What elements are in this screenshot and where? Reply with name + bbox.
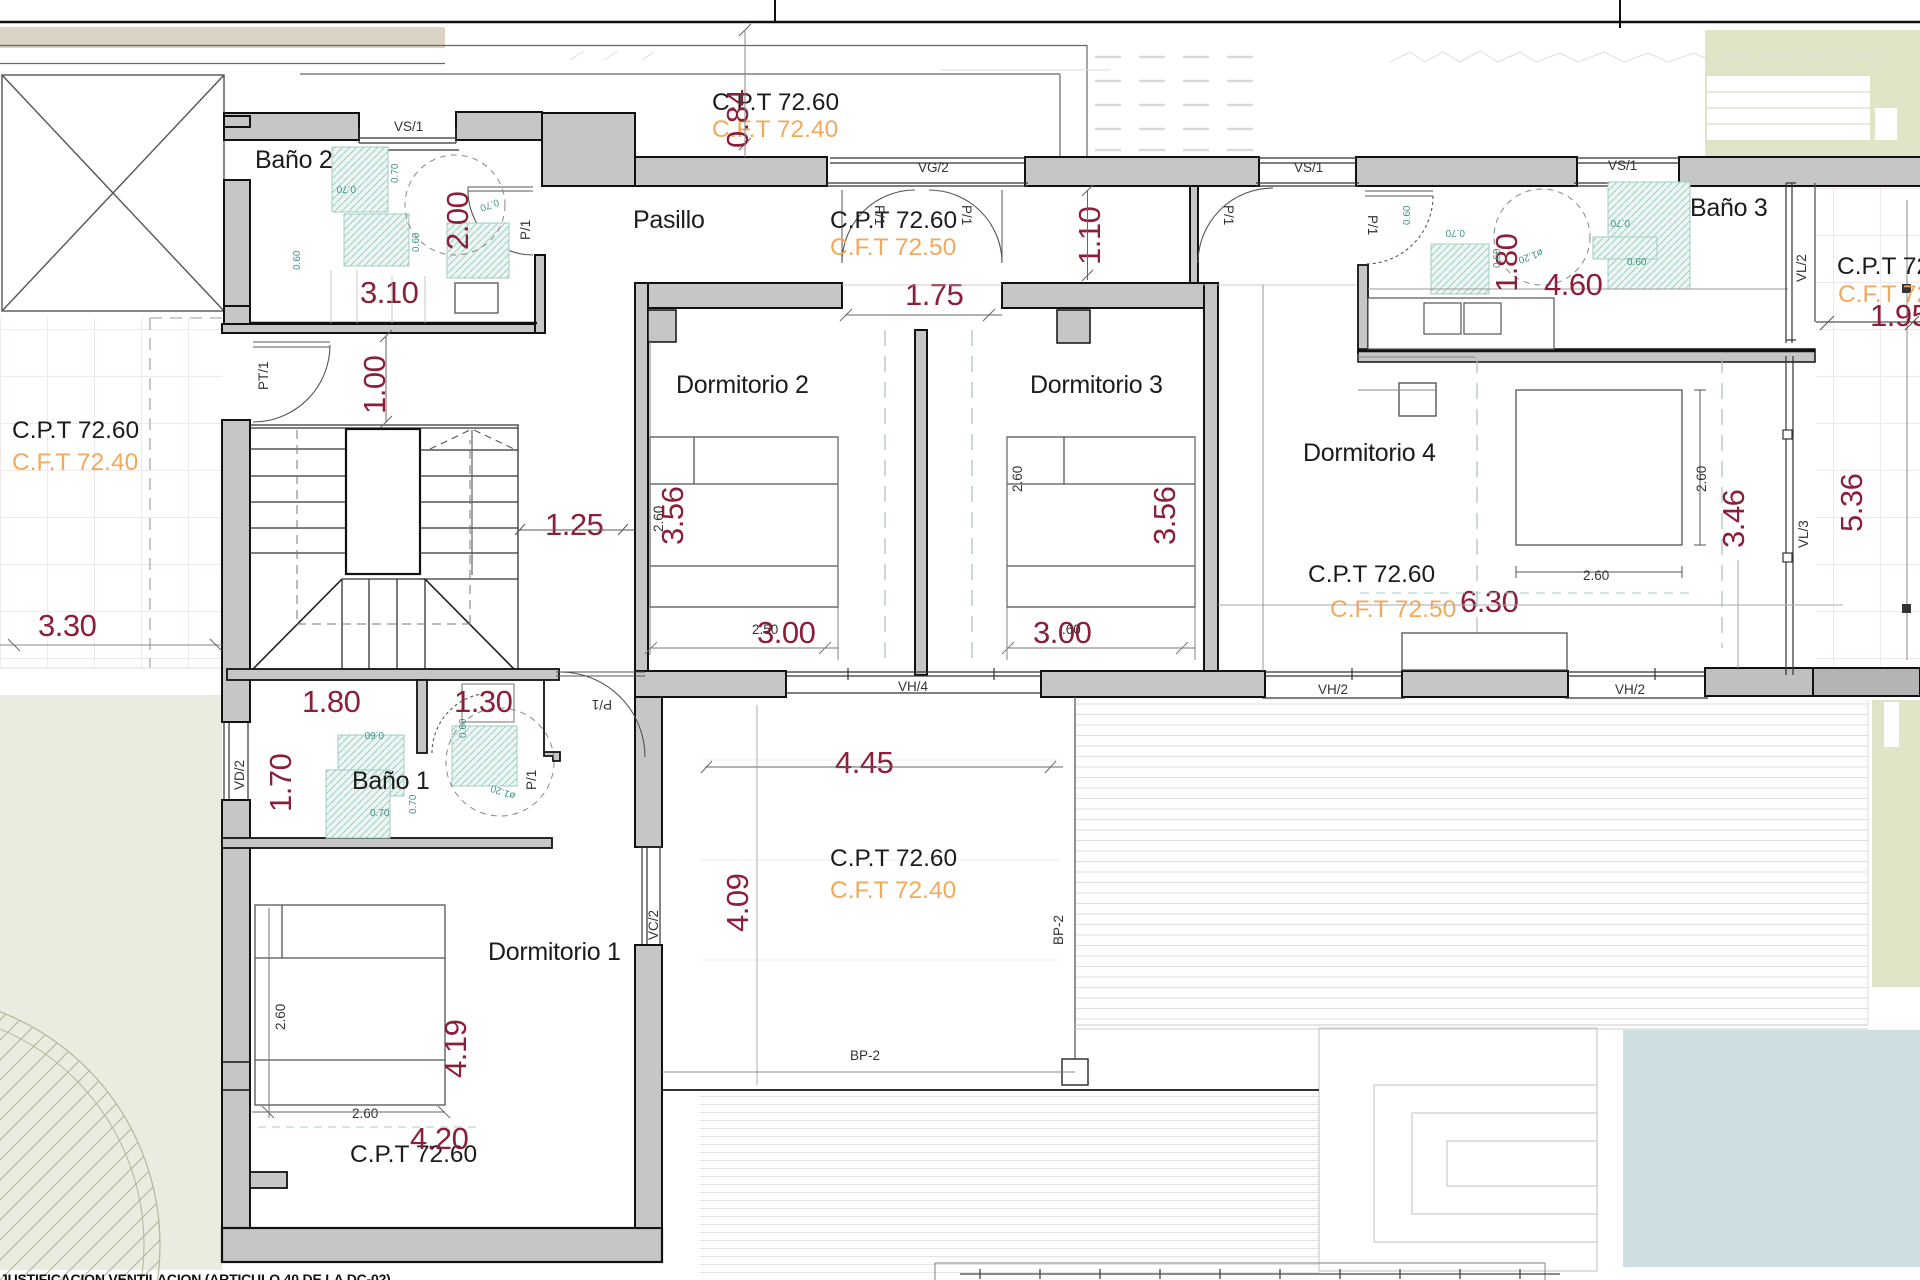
svg-text:P/1: P/1 xyxy=(959,205,974,225)
svg-text:2.00: 2.00 xyxy=(440,191,475,250)
svg-text:VC/2: VC/2 xyxy=(646,910,661,940)
svg-text:0.70: 0.70 xyxy=(370,808,390,819)
svg-text:1.75: 1.75 xyxy=(905,277,963,312)
svg-text:C.P.T 72.60: C.P.T 72.60 xyxy=(12,417,139,444)
svg-text:1.80: 1.80 xyxy=(302,684,361,719)
svg-text:P/1: P/1 xyxy=(872,205,887,225)
svg-text:1.30: 1.30 xyxy=(454,684,513,719)
svg-text:3.30: 3.30 xyxy=(38,608,97,643)
svg-text:2.60: 2.60 xyxy=(352,1106,378,1121)
svg-text:2.50: 2.50 xyxy=(752,622,778,637)
svg-text:Dormitorio 3: Dormitorio 3 xyxy=(1030,371,1163,399)
svg-text:0.60: 0.60 xyxy=(411,232,422,252)
svg-text:0.70: 0.70 xyxy=(390,163,401,183)
svg-text:Dormitorio 4: Dormitorio 4 xyxy=(1303,439,1436,467)
svg-text:4.20: 4.20 xyxy=(410,1121,469,1156)
svg-text:BP-2: BP-2 xyxy=(850,1048,880,1063)
svg-text:4.19: 4.19 xyxy=(438,1020,473,1078)
svg-text:6.30: 6.30 xyxy=(1460,584,1519,619)
svg-text:0.70: 0.70 xyxy=(336,183,356,194)
svg-text:VL/3: VL/3 xyxy=(1796,520,1811,548)
svg-text:BP-2: BP-2 xyxy=(1051,915,1066,945)
svg-text:Dormitorio 1: Dormitorio 1 xyxy=(488,938,621,966)
svg-text:4.45: 4.45 xyxy=(835,745,893,780)
svg-text:VS/1: VS/1 xyxy=(1608,158,1637,173)
svg-text:Dormitorio 2: Dormitorio 2 xyxy=(676,371,809,399)
svg-text:1.00: 1.00 xyxy=(357,355,392,414)
svg-text:2.60: 2.60 xyxy=(1694,466,1709,492)
svg-text:VS/1: VS/1 xyxy=(394,119,423,134)
svg-text:C.P.T 72.: C.P.T 72. xyxy=(1837,253,1920,280)
svg-text:JUSTIFICACION VENTILACION (ART: JUSTIFICACION VENTILACION (ARTICULO 40 D… xyxy=(0,1271,391,1280)
svg-text:5.36: 5.36 xyxy=(1834,474,1869,532)
svg-text:2.60: 2.60 xyxy=(273,1004,288,1030)
svg-text:0.60: 0.60 xyxy=(1402,205,1413,225)
svg-text:VS/1: VS/1 xyxy=(1294,160,1323,175)
svg-text:C.P.T 72.60: C.P.T 72.60 xyxy=(1308,561,1435,588)
svg-text:C.F.T 72.40: C.F.T 72.40 xyxy=(830,877,956,904)
svg-text:P/1: P/1 xyxy=(592,697,612,712)
svg-text:0.60: 0.60 xyxy=(458,718,469,738)
svg-text:PT/1: PT/1 xyxy=(256,361,271,390)
svg-text:VH/2: VH/2 xyxy=(1318,682,1348,697)
svg-text:P/1: P/1 xyxy=(518,220,533,240)
svg-text:P/1: P/1 xyxy=(1365,215,1380,235)
svg-text:2.60: 2.60 xyxy=(1010,466,1025,492)
svg-text:P/1: P/1 xyxy=(1221,205,1236,225)
svg-text:VL/2: VL/2 xyxy=(1794,254,1809,282)
svg-text:Pasillo: Pasillo xyxy=(633,206,705,234)
svg-text:3.10: 3.10 xyxy=(360,275,419,310)
svg-text:0.70: 0.70 xyxy=(408,794,419,814)
svg-text:1.95: 1.95 xyxy=(1870,298,1920,333)
svg-text:4.09: 4.09 xyxy=(720,874,755,932)
svg-text:Baño 1: Baño 1 xyxy=(352,767,429,795)
svg-text:1.25: 1.25 xyxy=(545,507,603,542)
svg-text:VD/2: VD/2 xyxy=(232,760,247,790)
svg-text:C.F.T 72.40: C.F.T 72.40 xyxy=(12,449,138,476)
svg-text:3.46: 3.46 xyxy=(1716,490,1751,548)
svg-text:Baño 3: Baño 3 xyxy=(1690,194,1767,222)
svg-text:VH/2: VH/2 xyxy=(1615,682,1645,697)
svg-text:1.70: 1.70 xyxy=(263,753,298,812)
svg-text:0.70: 0.70 xyxy=(1445,227,1465,238)
svg-text:2.60: 2.60 xyxy=(651,506,666,532)
svg-text:P/1: P/1 xyxy=(524,770,539,790)
svg-text:C.F.T 72.50: C.F.T 72.50 xyxy=(1330,596,1456,623)
svg-text:0.60: 0.60 xyxy=(1627,257,1647,268)
svg-text:VG/2: VG/2 xyxy=(918,160,949,175)
svg-text:1.10: 1.10 xyxy=(1072,206,1107,265)
svg-text:C.P.T 72.60: C.P.T 72.60 xyxy=(830,207,957,234)
svg-text:VH/4: VH/4 xyxy=(898,679,929,694)
svg-text:Baño 2: Baño 2 xyxy=(255,146,332,174)
svg-text:0.60: 0.60 xyxy=(292,250,303,270)
svg-text:.60: .60 xyxy=(1062,622,1081,637)
svg-text:2.60: 2.60 xyxy=(1583,568,1609,583)
svg-text:C.P.T 72.60: C.P.T 72.60 xyxy=(830,845,957,872)
svg-text:0.60: 0.60 xyxy=(364,729,384,740)
svg-text:0.60: 0.60 xyxy=(1492,248,1503,268)
svg-text:0.84: 0.84 xyxy=(720,89,755,148)
svg-text:3.56: 3.56 xyxy=(1147,487,1182,545)
svg-text:0.70: 0.70 xyxy=(1610,217,1630,228)
svg-text:4.60: 4.60 xyxy=(1544,267,1603,302)
svg-text:C.F.T 72.50: C.F.T 72.50 xyxy=(830,234,956,261)
